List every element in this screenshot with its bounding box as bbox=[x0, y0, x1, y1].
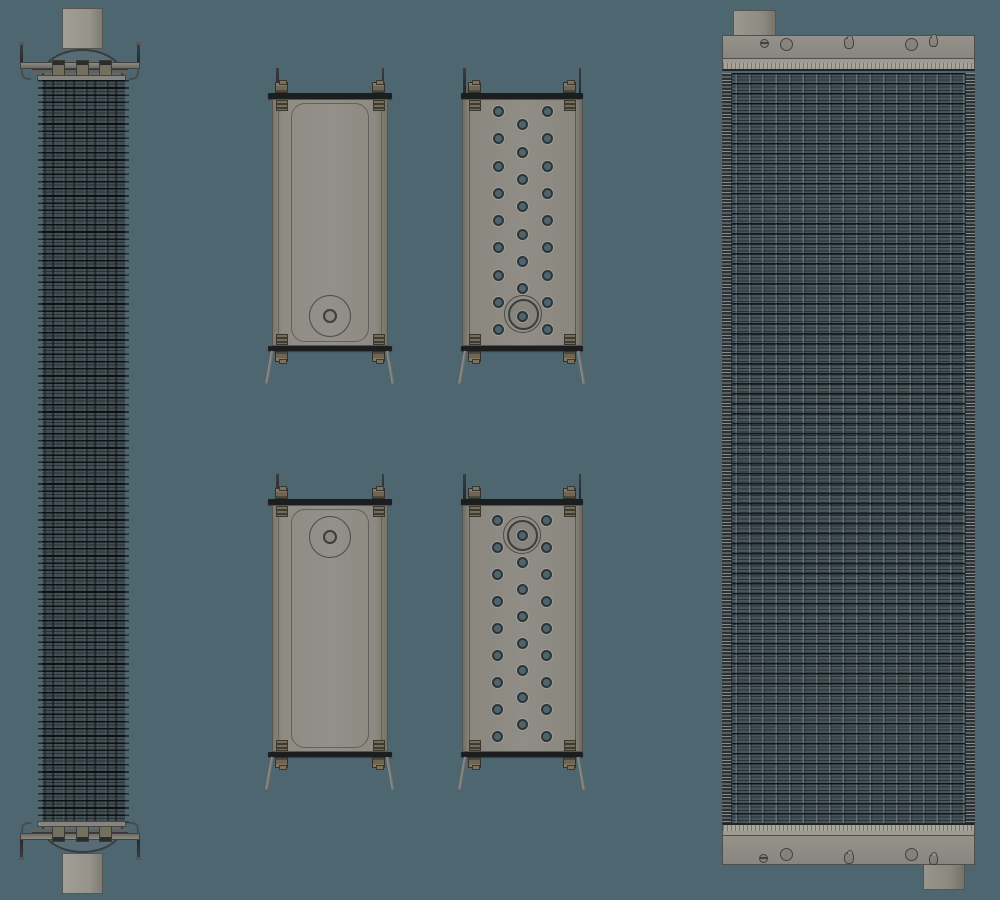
filler-neck bbox=[733, 10, 776, 36]
outlet-fitting bbox=[923, 865, 965, 890]
tank-port-oval bbox=[929, 854, 938, 865]
drawing-canvas bbox=[0, 0, 1000, 900]
tank-port-oval bbox=[844, 852, 854, 864]
bottom-gasket-strip bbox=[722, 823, 975, 831]
radiator-core-front bbox=[722, 73, 975, 823]
tank-port-vent bbox=[760, 39, 769, 48]
tank-port-oval bbox=[929, 36, 938, 47]
tank-port-round bbox=[780, 38, 793, 51]
tank-port-oval bbox=[844, 37, 854, 49]
tank-port-vent bbox=[759, 854, 768, 863]
radiator-front-view[interactable] bbox=[0, 0, 1000, 900]
tank-port-round bbox=[905, 38, 918, 51]
top-gasket-strip bbox=[722, 63, 975, 71]
tank-port-round bbox=[780, 848, 793, 861]
tank-port-round bbox=[905, 848, 918, 861]
